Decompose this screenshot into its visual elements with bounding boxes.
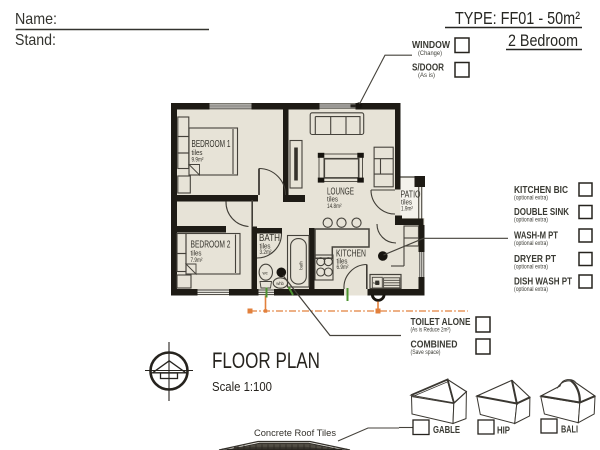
svg-text:bath: bath [299, 261, 304, 270]
svg-text:6.9m²: 6.9m² [337, 264, 349, 271]
svg-text:2 Bedroom: 2 Bedroom [508, 31, 578, 50]
svg-text:(optional extra): (optional extra) [514, 217, 548, 224]
svg-text:(optional extra): (optional extra) [514, 240, 548, 247]
svg-text:9.9m²: 9.9m² [192, 157, 204, 164]
svg-text:(optional extra): (optional extra) [514, 264, 548, 271]
svg-text:1.9m²: 1.9m² [401, 206, 413, 213]
svg-text:GABLE: GABLE [433, 425, 460, 436]
svg-text:(As is): (As is) [418, 72, 435, 79]
svg-text:(Change): (Change) [418, 50, 442, 57]
svg-text:7.9m²: 7.9m² [191, 257, 203, 264]
svg-text:Name:: Name: [15, 11, 57, 28]
svg-text:Scale 1:100: Scale 1:100 [212, 379, 272, 394]
svg-text:(Save space): (Save space) [411, 349, 441, 356]
svg-text:whb: whb [276, 281, 284, 286]
svg-text:FLOOR PLAN: FLOOR PLAN [212, 348, 320, 373]
svg-text:TYPE: FF01 - 50m²: TYPE: FF01 - 50m² [455, 8, 580, 28]
svg-text:3.2m²: 3.2m² [260, 249, 272, 256]
svg-text:(optional extra): (optional extra) [514, 286, 548, 293]
svg-text:14.8m²: 14.8m² [327, 203, 342, 210]
svg-text:sink: sink [373, 281, 380, 285]
svg-text:HIP: HIP [497, 426, 510, 437]
svg-text:wc: wc [263, 271, 269, 276]
svg-text:(optional extra): (optional extra) [514, 195, 548, 202]
svg-text:Concrete Roof Tiles: Concrete Roof Tiles [254, 428, 337, 438]
svg-text:BALI: BALI [561, 425, 578, 436]
svg-text:(As is Reduce 2m²): (As is Reduce 2m²) [411, 327, 451, 334]
svg-text:Stand:: Stand: [15, 32, 56, 49]
